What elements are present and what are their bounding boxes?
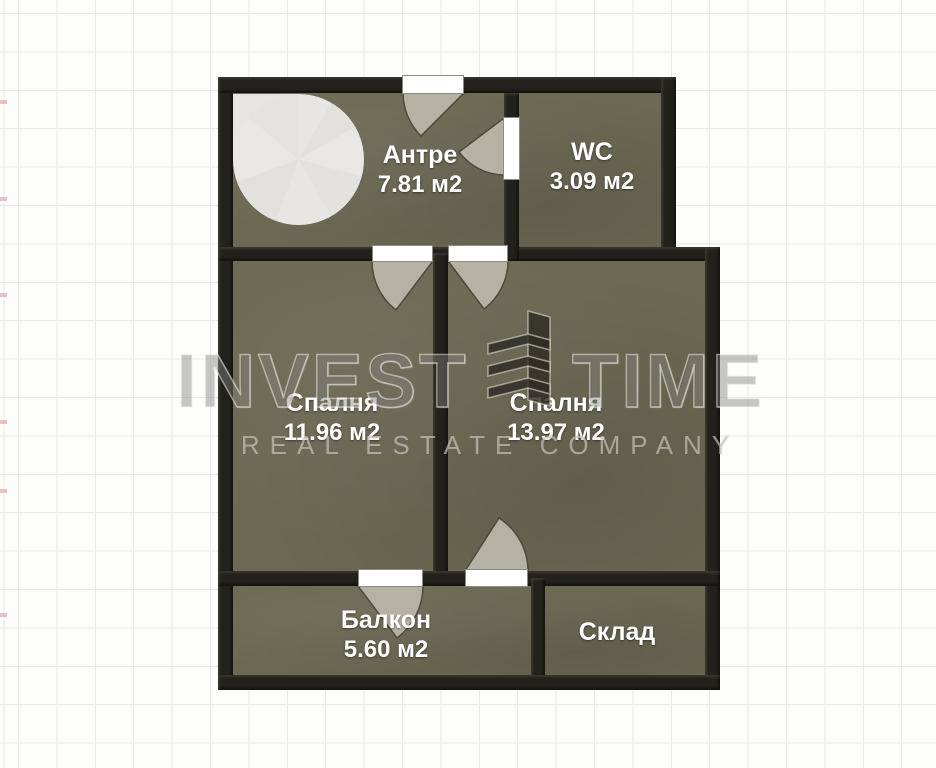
wall-left-exterior xyxy=(218,77,233,690)
room-area: 13.97 м2 xyxy=(446,418,666,448)
room-label-bedroom-2: Спалня 13.97 м2 xyxy=(446,388,666,448)
room-area: 11.96 м2 xyxy=(222,418,442,448)
room-name: Склад xyxy=(507,617,727,647)
ruler-tick xyxy=(0,489,7,493)
room-label-balcony: Балкон 5.60 м2 xyxy=(276,605,496,665)
ruler-tick xyxy=(0,613,7,617)
room-label-storage: Склад xyxy=(507,617,727,647)
room-name: Спалня xyxy=(222,388,442,418)
room-label-wc: WC 3.09 м2 xyxy=(482,137,702,197)
room-name: Балкон xyxy=(276,605,496,635)
door-opening-bedroom2-balcony xyxy=(465,569,528,587)
ruler-tick xyxy=(0,100,7,104)
ruler-tick xyxy=(0,420,7,424)
door-opening-bedroom-1 xyxy=(372,245,433,262)
door-opening-balcony xyxy=(358,569,423,587)
room-name: Спалня xyxy=(446,388,666,418)
room-label-bedroom-1: Спалня 11.96 м2 xyxy=(222,388,442,448)
room-name: WC xyxy=(482,137,702,167)
floor-plan-page: Антре 7.81 м2 WC 3.09 м2 Спалня 11.96 м2… xyxy=(0,0,936,768)
ruler-tick xyxy=(0,293,7,297)
room-area: 5.60 м2 xyxy=(276,635,496,665)
door-opening-entrance xyxy=(402,75,464,94)
wall-bottom-exterior xyxy=(218,675,720,690)
room-area: 3.09 м2 xyxy=(482,167,702,197)
door-opening-bedroom-2 xyxy=(448,245,508,262)
ruler-tick xyxy=(0,197,7,201)
